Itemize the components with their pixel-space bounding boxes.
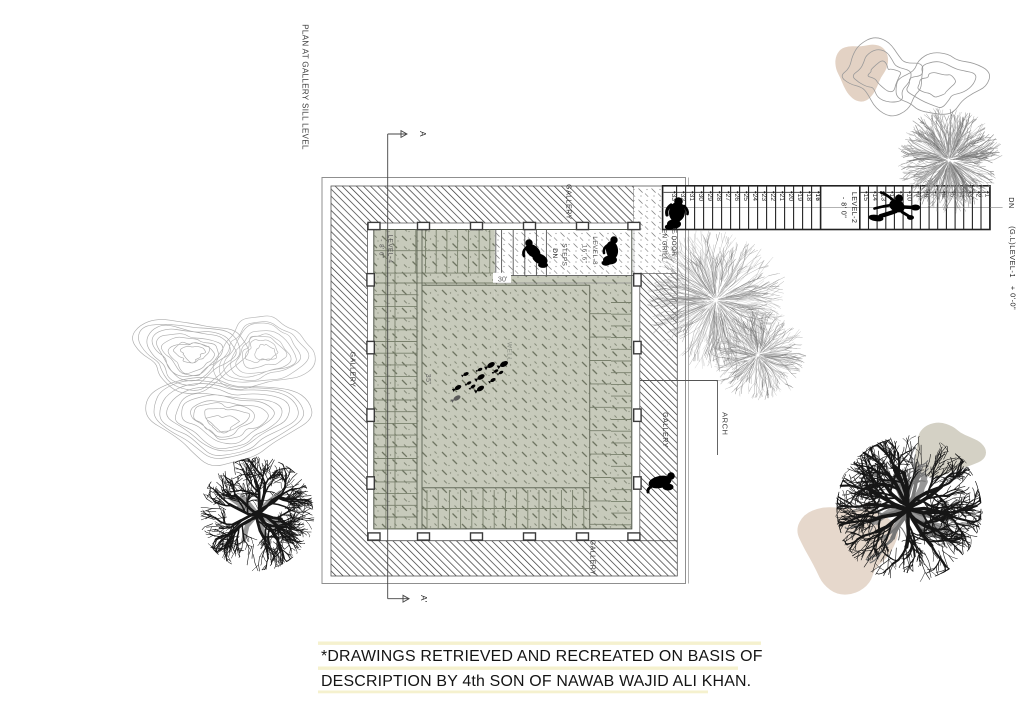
svg-text:24: 24 xyxy=(751,194,758,202)
svg-text:LEVEL-3: LEVEL-3 xyxy=(591,236,598,265)
svg-text:+ 0'-0": + 0'-0" xyxy=(1009,286,1018,310)
svg-text:WELL: WELL xyxy=(506,342,513,362)
svg-text:- 8' 0": - 8' 0" xyxy=(840,197,847,218)
svg-text:26: 26 xyxy=(733,194,740,202)
svg-text:28: 28 xyxy=(715,194,722,202)
svg-text:35': 35' xyxy=(424,374,431,385)
svg-text:18: 18 xyxy=(805,194,812,202)
svg-text:GALLERY: GALLERY xyxy=(661,412,668,448)
svg-text:DN: DN xyxy=(551,248,558,258)
svg-text:19: 19 xyxy=(796,194,803,202)
svg-text:1: 1 xyxy=(983,194,990,198)
svg-text:DESCRIPTION BY 4th SON OF NAWA: DESCRIPTION BY 4th SON OF NAWAB WAJID AL… xyxy=(321,673,751,690)
svg-text:DN: DN xyxy=(1007,197,1016,209)
svg-text:*DRAWINGS RETRIEVED AND RECREA: *DRAWINGS RETRIEVED AND RECREATED ON BAS… xyxy=(321,648,763,665)
svg-text:30: 30 xyxy=(697,194,704,202)
svg-text:22: 22 xyxy=(769,194,776,202)
svg-text:15: 15 xyxy=(862,194,869,202)
svg-text:31: 31 xyxy=(688,194,695,202)
svg-text:30': 30' xyxy=(498,275,508,284)
svg-text:ARCH: ARCH xyxy=(721,412,730,435)
svg-text:10: 10 xyxy=(905,194,912,202)
svg-text:LEVEL-2: LEVEL-2 xyxy=(850,192,857,224)
svg-text:2: 2 xyxy=(975,194,982,198)
svg-text:20: 20 xyxy=(787,194,794,202)
svg-text:29: 29 xyxy=(706,194,713,202)
svg-text:(G.L)LEVEL-1: (G.L)LEVEL-1 xyxy=(1008,226,1017,278)
svg-text:16' 6": 16' 6" xyxy=(581,245,588,264)
svg-text:A': A' xyxy=(419,595,428,603)
svg-text:A: A xyxy=(418,131,427,137)
svg-text:21: 21 xyxy=(778,194,785,202)
svg-text:27: 27 xyxy=(724,194,731,202)
svg-text:GALLERY: GALLERY xyxy=(565,184,572,220)
svg-text:14: 14 xyxy=(871,194,878,202)
svg-text:16: 16 xyxy=(814,194,821,202)
svg-text:25: 25 xyxy=(742,194,749,202)
svg-text:GALLERY: GALLERY xyxy=(349,352,356,388)
svg-text:PLAN AT GALLERY SILL LEVEL: PLAN AT GALLERY SILL LEVEL xyxy=(301,24,310,150)
svg-text:STEPS: STEPS xyxy=(561,243,568,266)
svg-text:- 8' 6": - 8' 6" xyxy=(377,239,384,259)
svg-text:GALLERY: GALLERY xyxy=(589,540,596,576)
svg-text:23: 23 xyxy=(760,194,767,202)
